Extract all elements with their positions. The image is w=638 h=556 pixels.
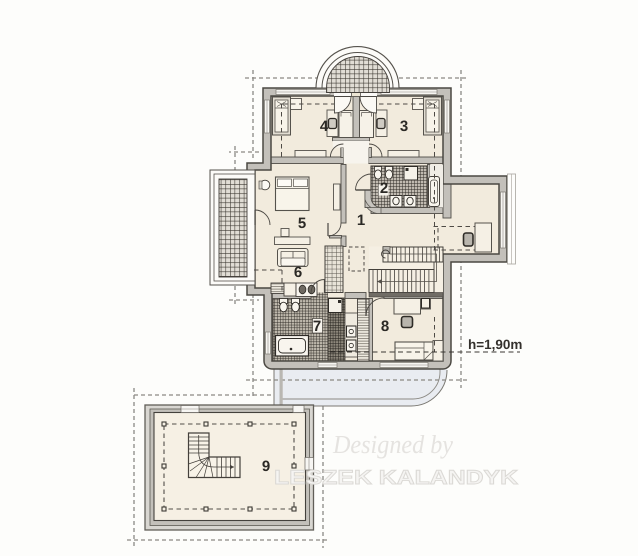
svg-text:2: 2	[380, 180, 388, 197]
svg-text:9: 9	[262, 458, 270, 475]
svg-text:h=1,90m: h=1,90m	[468, 337, 522, 352]
svg-text:4: 4	[320, 118, 329, 135]
svg-text:7: 7	[313, 318, 321, 335]
svg-text:6: 6	[294, 264, 302, 281]
svg-text:3: 3	[400, 118, 408, 135]
svg-text:1: 1	[357, 212, 365, 229]
svg-text:LESZEK KALANDYK: LESZEK KALANDYK	[274, 467, 519, 489]
svg-text:8: 8	[381, 318, 389, 335]
svg-text:Designed by: Designed by	[332, 430, 453, 459]
svg-text:5: 5	[298, 215, 306, 232]
